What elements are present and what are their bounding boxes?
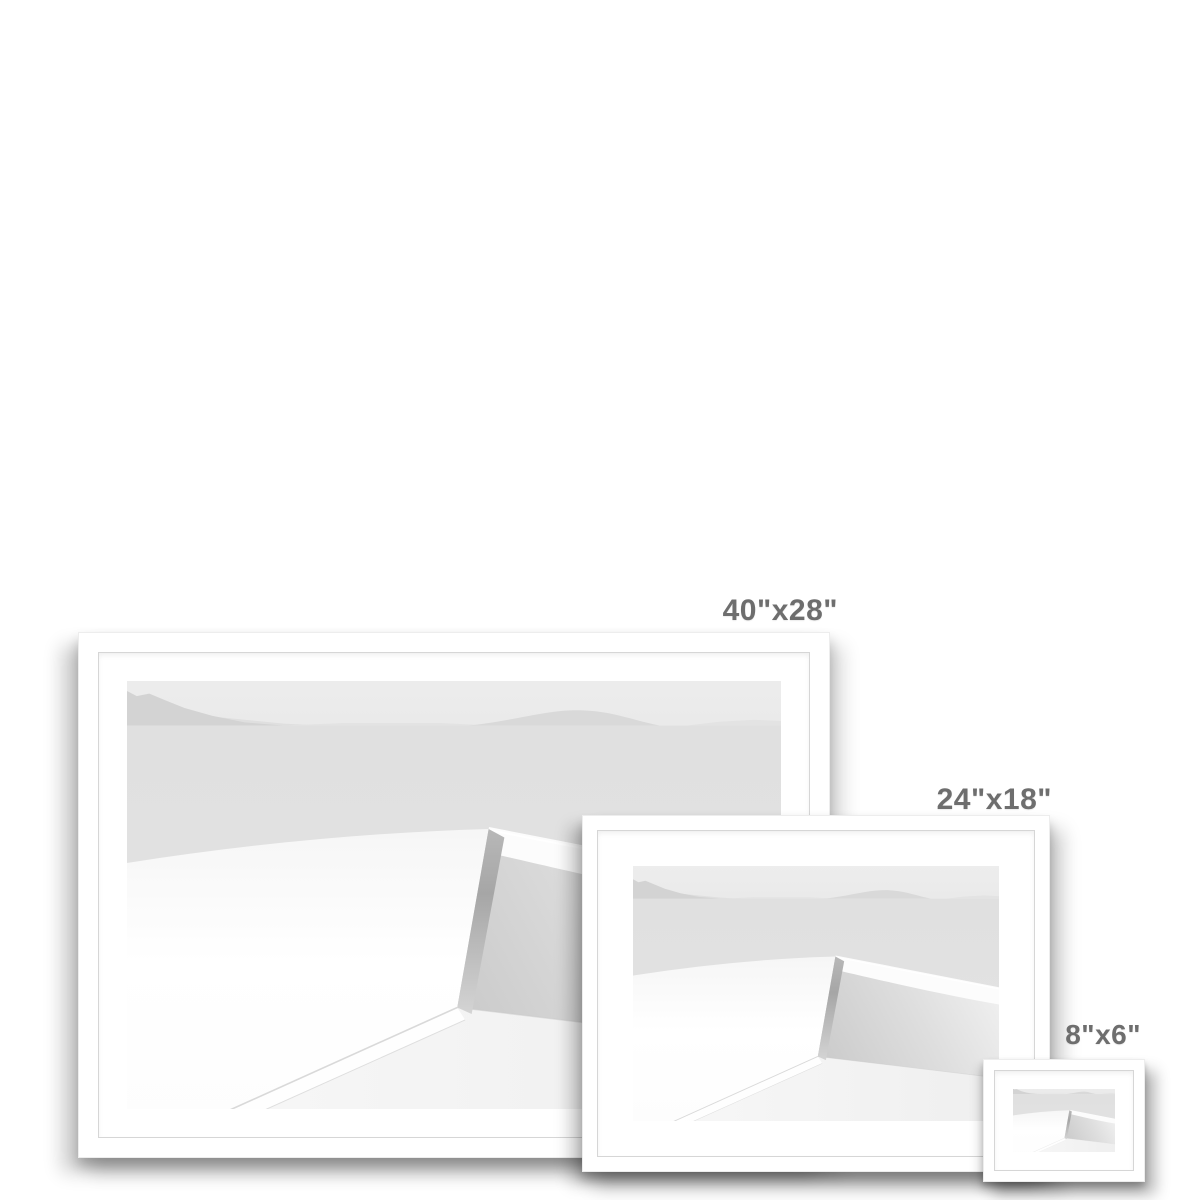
frame-24x18 <box>582 815 1050 1172</box>
size-label-24x18: 24"x18" <box>937 783 1052 817</box>
size-label-40x28: 40"x28" <box>723 594 838 628</box>
size-label-8x6: 8"x6" <box>1065 1019 1141 1051</box>
frame-8x6 <box>983 1059 1145 1182</box>
seascape-artwork <box>1013 1089 1115 1152</box>
artwork-photo <box>633 866 999 1121</box>
product-mockup-canvas: 40"x28" 24"x18" 8"x6" <box>0 0 1200 1200</box>
seascape-artwork <box>633 866 999 1121</box>
artwork-photo <box>1013 1089 1115 1152</box>
